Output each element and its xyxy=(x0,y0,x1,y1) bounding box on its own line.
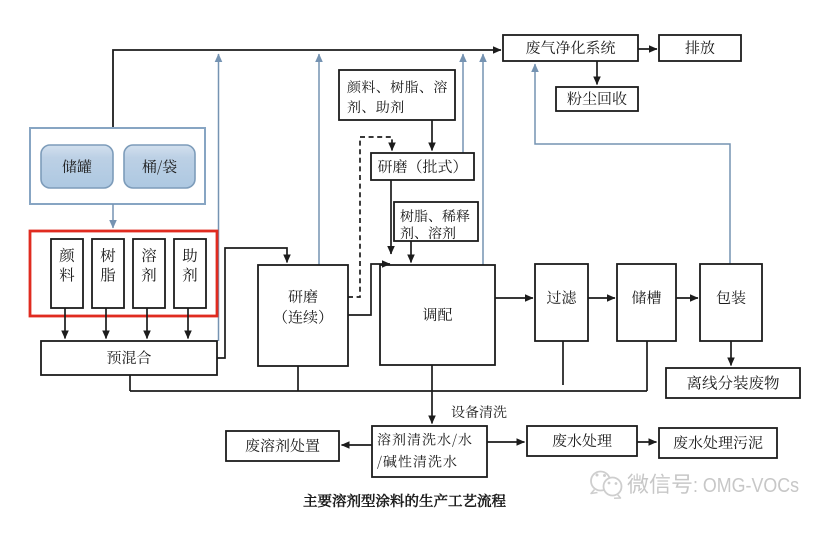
svg-text:: OMG-VOCs: : OMG-VOCs xyxy=(693,475,799,497)
